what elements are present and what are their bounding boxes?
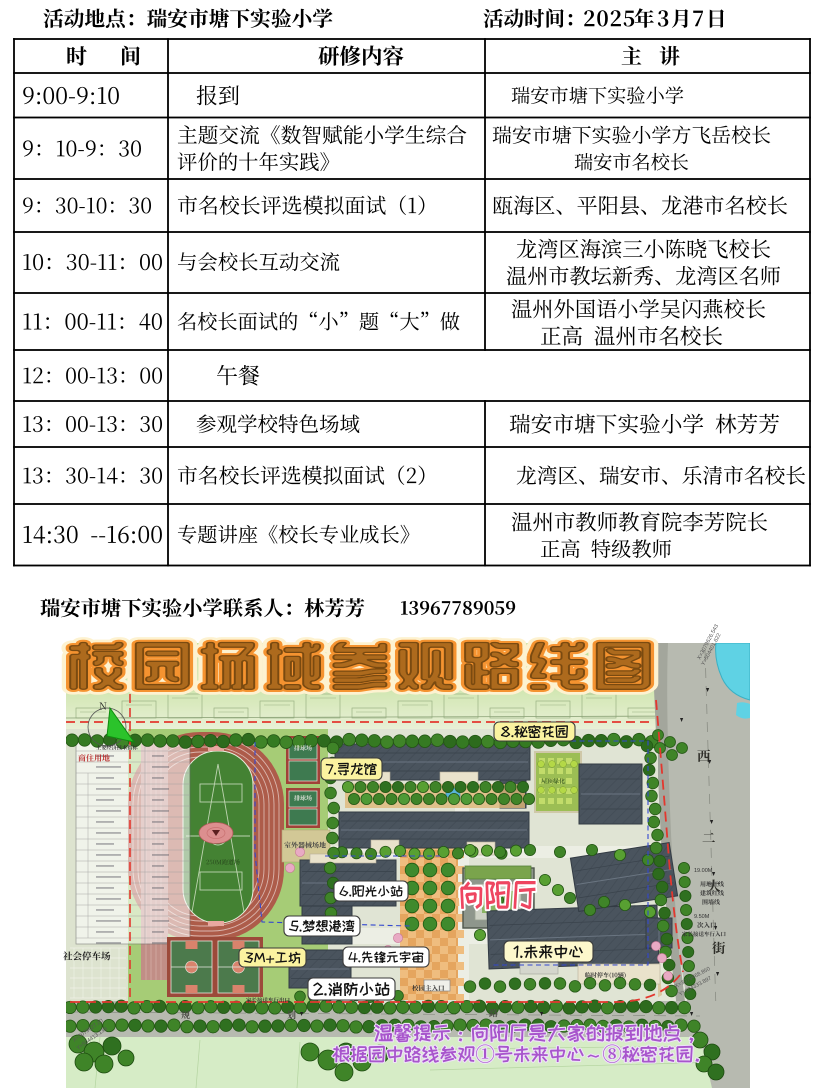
svg-text:19.00M: 19.00M [694, 868, 713, 874]
svg-text:9.50M: 9.50M [694, 914, 710, 920]
